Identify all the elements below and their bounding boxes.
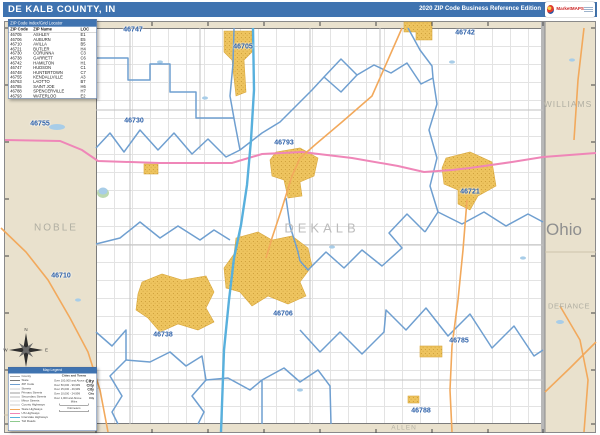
zip-label: 46710 [51,273,70,280]
neighbor-county-label-allen: ALLEN [391,425,417,432]
map-legend[interactable]: Map Legend County State [8,367,97,431]
scale-bar-line [60,410,89,412]
zip-label: 46755 [30,121,49,128]
legend-line-swatch [10,413,20,414]
zip-label: 46785 [449,338,468,345]
edition-label: 2020 ZIP Code Business Reference Edition [419,6,541,12]
neighbor-county-label-williams: WILLIAMS [544,99,593,109]
legend-line-swatch [10,405,20,406]
zip-index-table[interactable]: ZIP Code Index/Grid Locator ZIP Code ZIP… [8,19,97,99]
legend-city-class: Over 25,000 - 49,999 City [53,388,96,392]
publisher-logo: MarketMAPS [545,2,595,17]
zip-label: 46706 [273,311,292,318]
legend-line-swatch [10,417,20,418]
state-label-ohio: Ohio [546,220,582,240]
zip-label: 46742 [455,30,474,37]
zip-label: 46721 [460,189,479,196]
legend-line-swatch [10,421,20,422]
legend-line-item: Toll Roads [10,420,53,424]
page-title: DE KALB COUNTY, IN [8,4,116,15]
neighbor-county-label-defiance: DEFIANCE [548,302,590,311]
legend-scale-bars: Miles Kilometers [53,400,96,413]
legend-line-swatch [10,388,20,389]
legend-city-classes: Over 100,000 and Above City Over 50,000 … [53,379,96,400]
legend-line-swatch [10,409,20,410]
legend-line-swatch [10,397,20,398]
legend-line-swatch [10,392,20,393]
neighbor-county-label-noble: NOBLE [34,223,78,234]
legend-line-swatch [10,401,20,402]
zip-label: 46788 [411,408,430,415]
legend-city-class: Over 10,000 - 24,999 City [53,392,96,396]
scale-bar: Kilometers [53,407,96,414]
map-page: DE KALB COUNTY, IN 2020 ZIP Code Busines… [0,0,600,435]
header-bar: DE KALB COUNTY, IN 2020 ZIP Code Busines… [3,2,597,17]
legend-line-items: County State ZIP Code [9,374,53,424]
zip-label: 46747 [123,27,142,34]
legend-line-swatch [10,376,20,377]
zip-label: 46705 [233,44,252,51]
logo-text: MarketMAPS [556,7,584,12]
zip-table-body: 46705 ASHLEY E1 46706 AUBURN E5 46710 AV… [9,33,97,99]
logo-fineprint [584,6,593,13]
zip-table-title: ZIP Code Index/Grid Locator [9,20,97,27]
zip-label: 46730 [124,118,143,125]
legend-city-class: Over 50,000 - 99,999 City [53,383,96,387]
county-label-dekalb: DEKALB [284,221,359,236]
scale-bar-line [60,403,89,405]
logo-burst-icon [547,5,554,14]
zip-label: 46793 [274,140,293,147]
legend-line-swatch [10,380,20,381]
legend-line-swatch [10,384,20,385]
table-row: 46793 WATERLOO E2 [9,94,97,99]
zip-label: 46738 [153,332,172,339]
